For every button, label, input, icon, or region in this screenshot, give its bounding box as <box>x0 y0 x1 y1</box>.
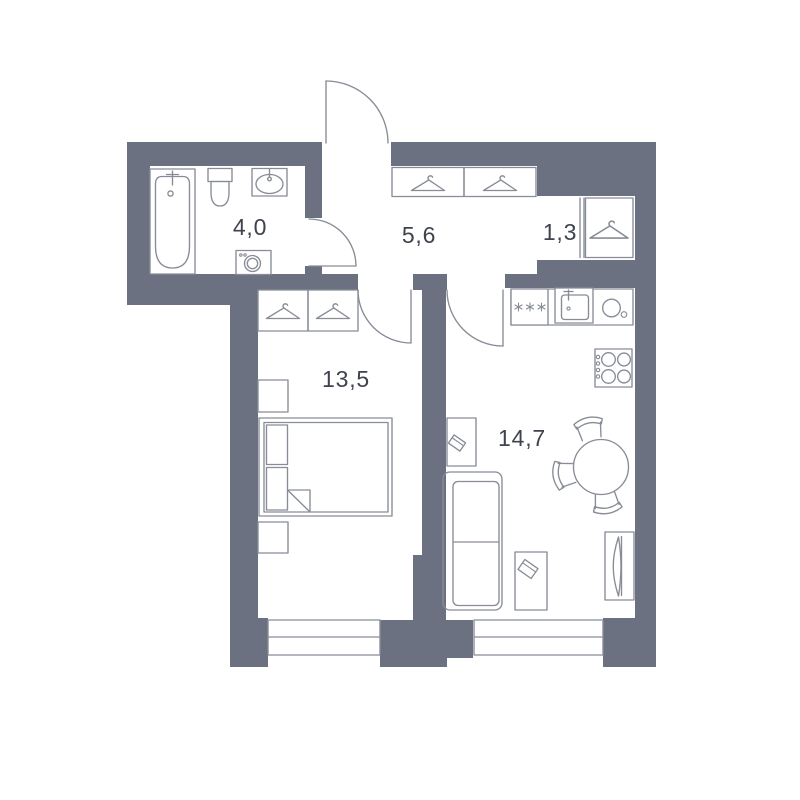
nightstand <box>258 380 288 412</box>
room-labels: 4,0 5,6 1,3 13,5 14,7 <box>233 214 577 451</box>
pillow <box>267 425 288 465</box>
wall-bathroom-right-upper <box>305 166 322 218</box>
bathtub-tap-icon <box>167 171 179 185</box>
kitchen-door-swing-arc <box>447 290 503 346</box>
washbasin <box>252 169 287 197</box>
wardrobe-cell <box>308 290 358 331</box>
pillow <box>267 468 288 511</box>
chair <box>573 415 606 442</box>
wall-bottom-left-corner <box>230 618 268 667</box>
desk-decor <box>448 435 465 451</box>
wall-closet-bottom <box>537 260 635 288</box>
room-label-hallway: 5,6 <box>402 222 436 248</box>
kitchen-sink <box>555 288 593 323</box>
room-label-kitchen-living: 14,7 <box>498 425 546 451</box>
burner <box>618 370 631 383</box>
wall-top-middle <box>391 142 537 166</box>
desk <box>447 418 476 466</box>
closet-divider <box>580 198 584 258</box>
entrance-door <box>326 81 388 143</box>
hallway-wardrobe <box>392 168 536 197</box>
floor-plan: 4,0 5,6 1,3 13,5 14,7 <box>0 0 800 800</box>
wall-top-left <box>127 142 322 166</box>
room-label-wardrobe-niche: 1,3 <box>543 219 577 245</box>
bedroom-furniture <box>258 290 392 553</box>
bathroom-door-swing-arc <box>309 219 356 266</box>
kitchen-window <box>474 620 603 655</box>
wall-divider-widening <box>413 555 446 620</box>
closet-wardrobe <box>580 198 633 258</box>
cooktop <box>595 349 632 387</box>
dining-table <box>574 440 629 495</box>
burner <box>618 353 631 366</box>
bathtub <box>150 169 195 274</box>
bedroom-door-swing-arc <box>358 290 411 343</box>
chair <box>551 459 577 491</box>
wardrobe-cell <box>258 290 308 331</box>
bathtub-drain <box>168 191 173 196</box>
hanger-icon <box>590 221 628 238</box>
bathroom-door <box>309 219 356 266</box>
table-decor <box>518 559 538 578</box>
hob-appliance <box>603 299 621 317</box>
doors <box>309 81 503 346</box>
wall-bedroom-left-outer <box>230 274 258 667</box>
wall-between-doors <box>413 274 447 290</box>
bedroom-window <box>268 620 380 655</box>
bedroom-door <box>358 290 411 343</box>
sofa <box>443 472 502 610</box>
kitchen-door <box>447 290 503 346</box>
dining-set <box>551 415 629 516</box>
coffee-table <box>515 552 547 610</box>
tv-icon <box>613 537 621 596</box>
hanger-icon <box>412 176 445 191</box>
wardrobe-cell <box>464 168 536 197</box>
burner <box>602 370 616 384</box>
burner <box>602 353 616 367</box>
hanger-icon <box>317 304 350 319</box>
nightstand <box>258 522 288 553</box>
wardrobe-cell <box>586 198 634 258</box>
wall-window-pier <box>380 620 473 658</box>
wall-top-right-thick <box>537 142 635 196</box>
toilet <box>208 169 232 207</box>
room-label-bedroom: 13,5 <box>322 366 370 392</box>
wall-hall-kitchen <box>505 274 537 288</box>
wall-window-pier-tab <box>380 658 447 667</box>
wardrobe-cell <box>392 168 464 197</box>
wall-right-outer <box>635 142 656 667</box>
wall-hall-bedroom <box>258 274 358 290</box>
blanket-fold <box>288 490 311 512</box>
bed <box>259 418 392 516</box>
tv-stand <box>605 532 634 600</box>
entrance-door-swing-arc <box>326 81 388 143</box>
room-label-bathroom: 4,0 <box>233 214 267 240</box>
hanger-icon <box>484 176 517 191</box>
wall-bottom-right-corner <box>603 618 656 667</box>
kitchen-counter <box>511 288 633 325</box>
hanger-icon <box>267 304 300 319</box>
floor-plan-drawing: 4,0 5,6 1,3 13,5 14,7 <box>0 0 800 800</box>
washing-machine <box>236 251 271 275</box>
